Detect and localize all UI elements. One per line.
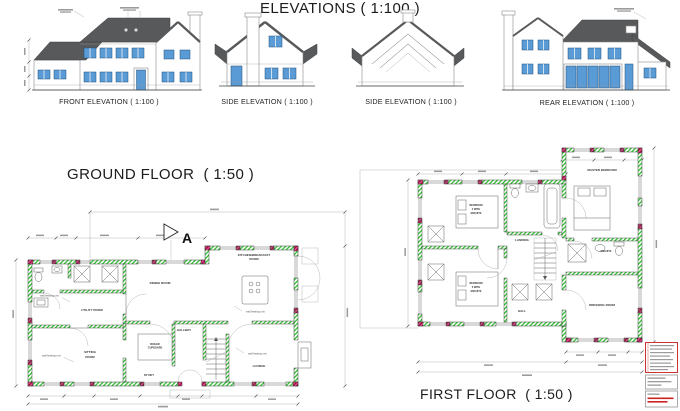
label-bed2-1: BEDROOM bbox=[469, 204, 482, 207]
label-dressing-room: DRESSING ROOM bbox=[589, 303, 615, 307]
label-bed3-1: BEDROOM bbox=[469, 282, 482, 285]
chimney bbox=[504, 14, 513, 90]
rear-elevation-drawing bbox=[498, 6, 673, 100]
label-ensuite: ENSUITE bbox=[601, 250, 612, 253]
ground-floor-title: GROUND FLOOR ( 1:50 ) bbox=[67, 166, 254, 183]
label-lounge: LOUNGE bbox=[253, 364, 266, 368]
label-bed3-2: 3 WITH bbox=[472, 286, 481, 289]
first-fixtures bbox=[428, 184, 624, 306]
section-marker-letter: A bbox=[182, 230, 192, 246]
drawing-sheet: ELEVATIONS ( 1:100 ) FRONT ELEVATION ( 1… bbox=[0, 0, 680, 411]
label-sitting-2: ROOM bbox=[85, 355, 95, 359]
label-hall: HALL bbox=[518, 309, 526, 313]
label-cupboard-1: BOILER bbox=[150, 343, 160, 346]
title-block bbox=[645, 342, 679, 410]
label-bed2-2: 2 WITH bbox=[472, 208, 481, 211]
front-elevation-drawing bbox=[22, 6, 207, 100]
fireplace bbox=[298, 342, 311, 368]
label-landing: LANDING bbox=[515, 238, 529, 242]
side-elevation-2-caption: SIDE ELEVATION ( 1:100 ) bbox=[352, 97, 470, 106]
section-marker-a: A bbox=[164, 224, 192, 260]
label-master-bedroom: MASTER BEDROOM bbox=[587, 168, 617, 172]
svg-text:wall heating unit: wall heating unit bbox=[246, 310, 265, 314]
rear-annotation bbox=[614, 8, 646, 19]
svg-text:wall heating unit: wall heating unit bbox=[248, 352, 267, 356]
label-bed3-3: ENSUITE bbox=[471, 290, 482, 293]
label-study: STUDY bbox=[144, 373, 154, 377]
kitchen-island bbox=[242, 276, 268, 304]
label-hallway: HALLWAY bbox=[177, 328, 191, 332]
svg-text:wall heating unit: wall heating unit bbox=[40, 294, 59, 298]
side-elevation-1-drawing bbox=[213, 8, 321, 98]
first-windows bbox=[419, 149, 641, 341]
chimney bbox=[403, 12, 413, 22]
label-sitting-1: SITTING bbox=[84, 350, 96, 354]
chimney bbox=[247, 16, 259, 86]
side-elevation-1-caption: SIDE ELEVATION ( 1:100 ) bbox=[211, 97, 323, 106]
label-dining-room: DINING ROOM bbox=[150, 281, 171, 285]
ground-floor-plan: A bbox=[10, 190, 355, 410]
ground-stairs bbox=[206, 337, 226, 380]
first-stairs bbox=[534, 238, 556, 280]
label-kitchen-2: ROOM bbox=[249, 257, 259, 261]
label-cupboard-2: CUPBOARD bbox=[148, 347, 163, 350]
first-exterior-walls bbox=[418, 148, 642, 342]
first-floor-plan: MASTER BEDROOM BEDROOM 2 WITH ENSUITE BE… bbox=[350, 140, 680, 390]
front-house bbox=[32, 12, 202, 90]
label-bed2-3: ENSUITE bbox=[471, 212, 482, 215]
side-elevation-2-drawing bbox=[350, 8, 470, 98]
label-utility: UTILITY ROOM bbox=[81, 308, 103, 312]
svg-text:wall heating unit: wall heating unit bbox=[42, 354, 61, 358]
